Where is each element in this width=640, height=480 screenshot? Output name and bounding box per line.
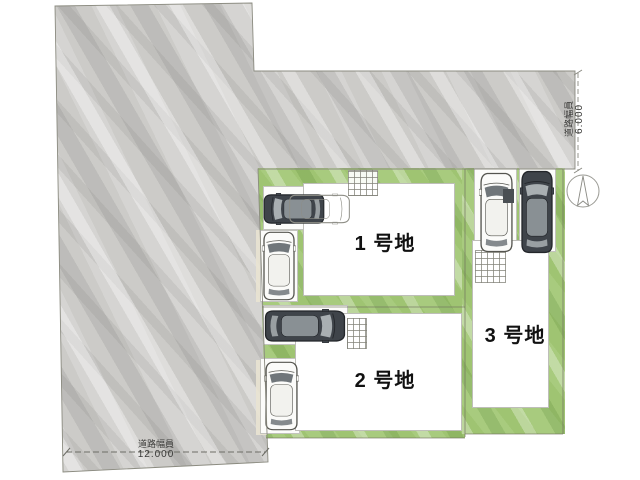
right-road-width-label: 道路幅員 6.000	[564, 69, 586, 169]
lot-1-ghost-car-outline-icon	[304, 178, 335, 240]
lot-2-white-car-icon	[264, 361, 299, 431]
right-road-width-value: 6.000	[574, 69, 586, 169]
lot-3-dark-car-icon	[520, 170, 554, 254]
lot-1-entrance-tiles	[348, 170, 378, 196]
lot-3-label: 3 号地	[465, 319, 565, 348]
lot-2-label: 2 号地	[335, 364, 435, 393]
bottom-road-width-title: 道路幅員	[106, 439, 206, 449]
bottom-road-width-value: 12.000	[106, 449, 206, 461]
lot-1-label: 1 号地	[335, 227, 435, 256]
lot-2-entrance-tiles	[347, 318, 367, 349]
bottom-road-width-label: 道路幅員 12.000	[106, 439, 206, 461]
right-road-width-title: 道路幅員	[564, 69, 574, 169]
lot-3-white-car-icon	[479, 172, 514, 253]
lot-3-white-car-door-shade	[503, 189, 514, 203]
lot-3-entrance-tiles	[475, 250, 506, 283]
site-plan: 1 号地 2 号地 3 号地 道路幅員 12.000 道路幅員 6.000	[0, 0, 640, 480]
lot-2-dark-car-icon	[288, 285, 322, 367]
north-arrow-icon	[567, 175, 599, 207]
